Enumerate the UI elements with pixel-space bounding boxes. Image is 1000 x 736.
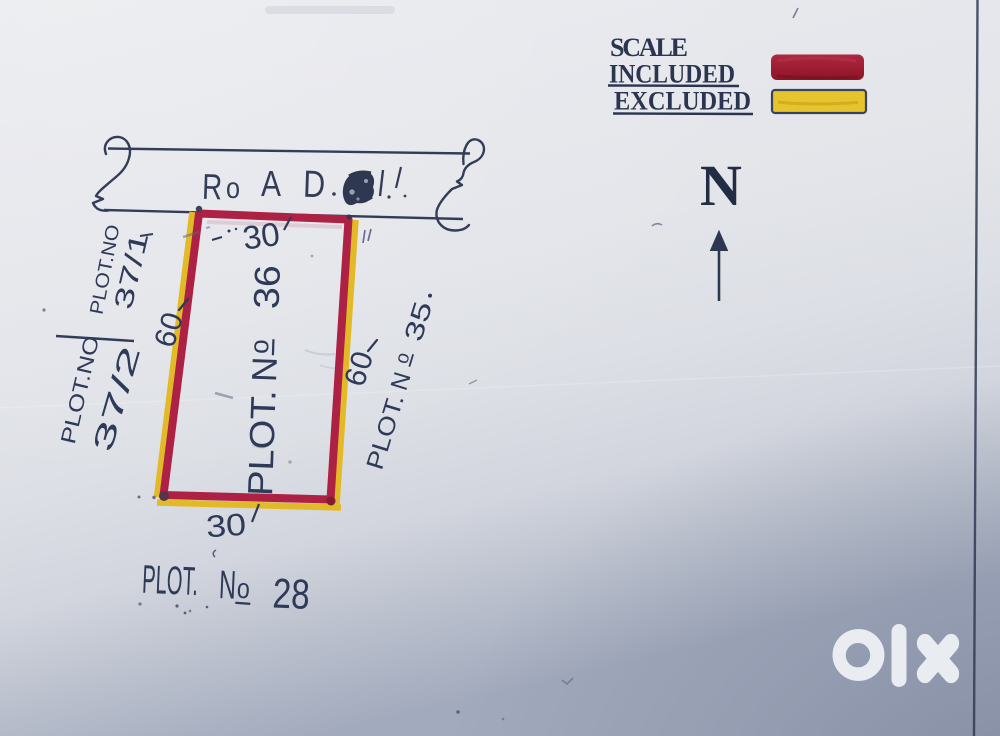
svg-text:30: 30 [205,507,247,545]
svg-text:28: 28 [272,569,311,618]
svg-text:o: o [226,172,240,205]
svg-text:INCLUDED: INCLUDED [609,60,735,89]
svg-text:o: o [236,573,250,605]
svg-text:R: R [201,166,222,208]
svg-text:D: D [302,164,325,207]
svg-text:36: 36 [246,264,289,309]
svg-text:30: 30 [240,215,282,257]
svg-text:EXCLUDED: EXCLUDED [614,87,751,116]
svg-text:N: N [218,563,237,608]
svg-text:A: A [261,163,281,204]
svg-text:PLOT.: PLOT. [241,389,284,496]
svg-text:PLOT.: PLOT. [141,558,199,604]
svg-text:SCALE: SCALE [610,33,688,62]
svg-text:N: N [245,356,285,383]
svg-text:o: o [244,339,274,355]
svg-text:N: N [700,153,742,218]
